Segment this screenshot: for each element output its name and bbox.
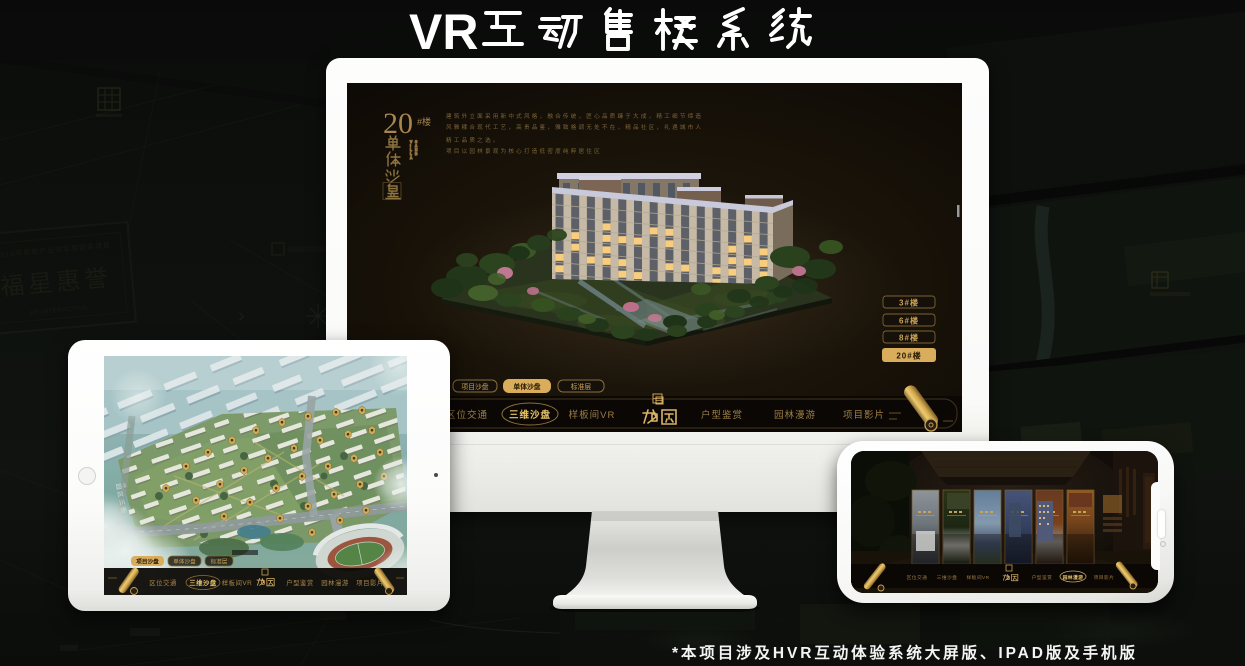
svg-text:8#楼: 8#楼 — [899, 333, 919, 343]
svg-text:›: › — [238, 305, 245, 327]
svg-text:园林漫游: 园林漫游 — [321, 578, 349, 587]
svg-text:3#楼: 3#楼 — [899, 298, 919, 308]
svg-text:项目沙盘: 项目沙盘 — [136, 558, 159, 566]
svg-text:20#楼: 20#楼 — [896, 351, 921, 361]
svg-text:园林漫游: 园林漫游 — [774, 409, 816, 421]
svg-text:项目沙盘: 项目沙盘 — [461, 382, 488, 391]
svg-text:户型鉴赏: 户型鉴赏 — [286, 578, 314, 587]
svg-text:#楼: #楼 — [417, 116, 431, 127]
svg-text:6#楼: 6#楼 — [899, 316, 919, 326]
svg-text:三维沙盘: 三维沙盘 — [509, 409, 551, 421]
svg-text:单体沙盘: 单体沙盘 — [173, 558, 196, 566]
svg-text:20: 20 — [383, 107, 413, 140]
svg-text:单体沙盘: 单体沙盘 — [513, 382, 540, 391]
svg-text:区位交通: 区位交通 — [149, 578, 177, 587]
svg-text:园林漫游: 园林漫游 — [1063, 574, 1084, 581]
svg-text:项目影片: 项目影片 — [843, 409, 885, 421]
svg-text:三维沙盘: 三维沙盘 — [937, 574, 958, 581]
svg-text:风雅糅合现代工艺，高贵品鉴，雅致格调无处不在，精品社区，礼遇: 风雅糅合现代工艺，高贵品鉴，雅致格调无处不在，精品社区，礼遇城市人 — [446, 123, 703, 131]
svg-text:项目以园林景观为核心打造低密度纯粹居住区: 项目以园林景观为核心打造低密度纯粹居住区 — [446, 147, 602, 155]
svg-text:样板间VR: 样板间VR — [222, 578, 253, 587]
svg-text:精工品质之选。: 精工品质之选。 — [446, 136, 501, 144]
svg-text:VR: VR — [409, 4, 478, 60]
svg-text:建筑外立面采用新中式风格，融合传统，匠心品质臻于大成，精工细: 建筑外立面采用新中式风格，融合传统，匠心品质臻于大成，精工细节缔造 — [446, 112, 703, 120]
svg-text:户型鉴赏: 户型鉴赏 — [1032, 574, 1053, 581]
svg-text:样板间VR: 样板间VR — [966, 574, 989, 581]
svg-text:标准层: 标准层 — [571, 382, 592, 391]
svg-text:标准层: 标准层 — [211, 558, 228, 566]
svg-text:项目影片: 项目影片 — [1094, 574, 1115, 581]
svg-text:区位交通: 区位交通 — [446, 409, 488, 421]
svg-text:样板间VR: 样板间VR — [569, 409, 616, 421]
svg-text:户型鉴赏: 户型鉴赏 — [701, 409, 743, 421]
svg-text:区位交通: 区位交通 — [907, 574, 928, 581]
svg-text:三维沙盘: 三维沙盘 — [189, 578, 217, 587]
